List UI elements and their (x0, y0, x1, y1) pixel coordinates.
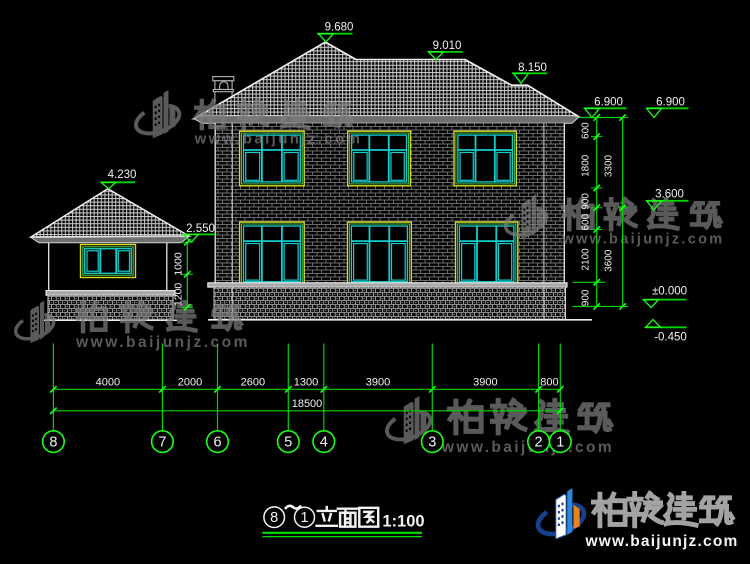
svg-text:3600: 3600 (604, 249, 615, 272)
svg-text:5: 5 (284, 435, 292, 451)
svg-text:1: 1 (556, 435, 564, 451)
svg-text:8: 8 (49, 435, 57, 451)
svg-text:7: 7 (158, 435, 166, 451)
svg-text:9.680: 9.680 (325, 22, 354, 34)
svg-text:3900: 3900 (366, 376, 390, 388)
svg-text:2600: 2600 (241, 376, 265, 388)
svg-text:www.baijunjz.com: www.baijunjz.com (562, 232, 725, 248)
svg-text:2000: 2000 (178, 376, 202, 388)
svg-text:6.900: 6.900 (594, 96, 623, 108)
svg-text:-0.450: -0.450 (654, 331, 687, 343)
svg-text:1200: 1200 (172, 283, 184, 307)
svg-text:4: 4 (320, 435, 328, 451)
svg-text:3300: 3300 (604, 154, 615, 177)
svg-text:2.550: 2.550 (186, 223, 215, 235)
svg-text:1000: 1000 (172, 252, 184, 276)
svg-text:1: 1 (300, 510, 308, 526)
svg-text:±0.000: ±0.000 (652, 285, 687, 297)
svg-text:9.010: 9.010 (433, 40, 462, 52)
svg-text:3900: 3900 (473, 376, 497, 388)
svg-text:1:100: 1:100 (382, 513, 424, 531)
svg-text:www.baijunjz.com: www.baijunjz.com (194, 131, 363, 148)
svg-text:3.600: 3.600 (655, 189, 684, 201)
svg-text:4.230: 4.230 (108, 169, 137, 181)
svg-text:1300: 1300 (294, 376, 318, 388)
svg-text:900: 900 (581, 193, 592, 210)
svg-text:6.900: 6.900 (656, 96, 685, 108)
svg-text:8.150: 8.150 (518, 62, 547, 74)
svg-text:2: 2 (535, 435, 543, 451)
svg-text:3: 3 (428, 435, 436, 451)
svg-text:800: 800 (540, 376, 558, 388)
svg-text:8: 8 (270, 510, 278, 526)
svg-text:www.baijunjz.com: www.baijunjz.com (585, 533, 739, 550)
svg-text:2100: 2100 (581, 248, 592, 271)
svg-text:18500: 18500 (292, 398, 323, 410)
svg-text:4000: 4000 (96, 376, 120, 388)
svg-text:600: 600 (581, 213, 592, 230)
svg-text:1800: 1800 (581, 154, 592, 177)
svg-text:600: 600 (581, 122, 592, 139)
svg-text:6: 6 (213, 435, 221, 451)
svg-text:900: 900 (581, 289, 592, 306)
